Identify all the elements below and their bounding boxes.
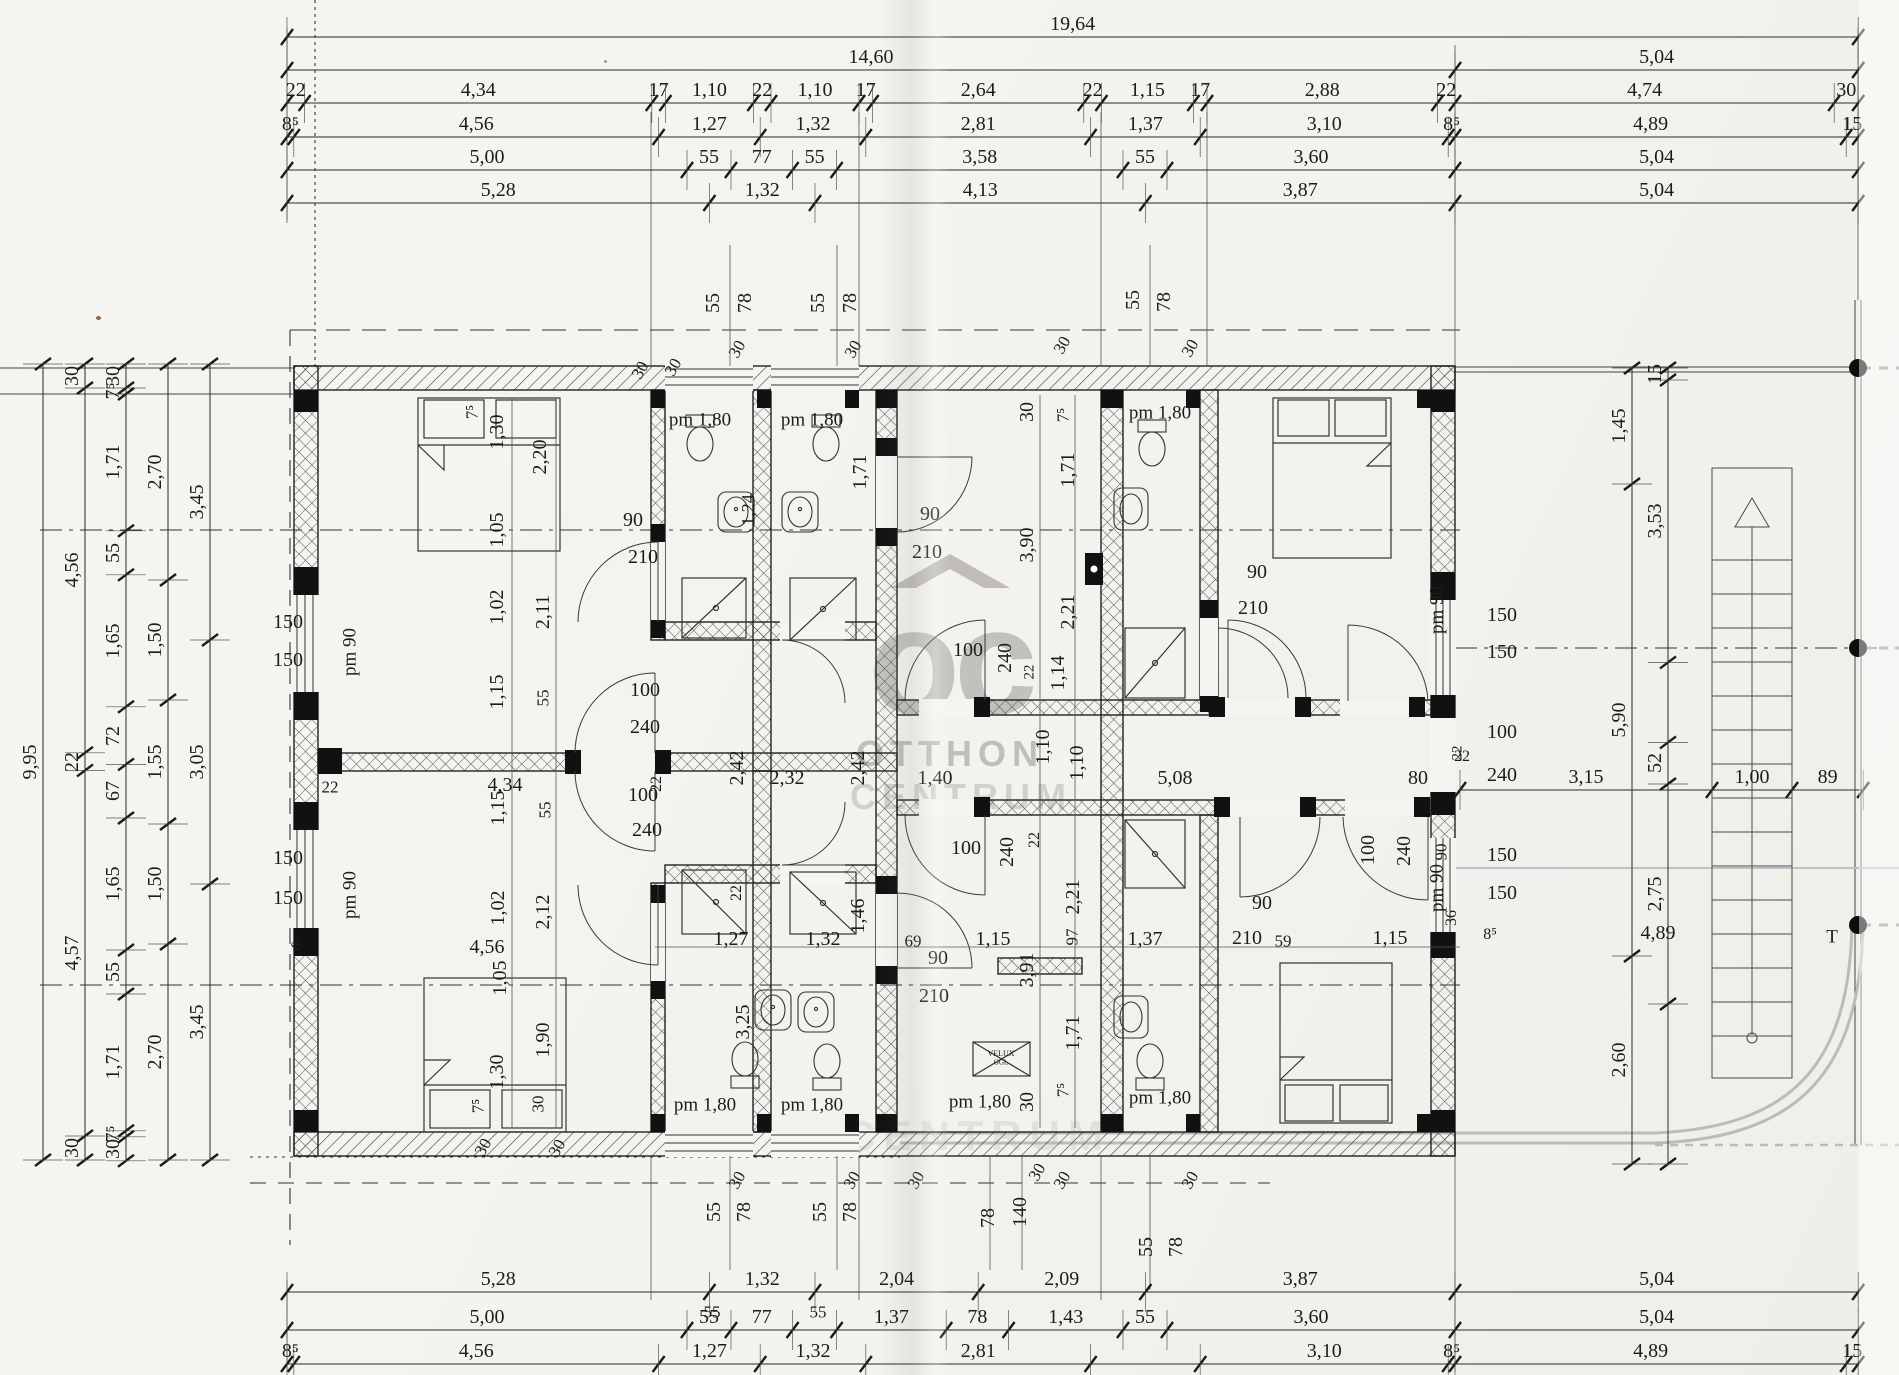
dim-label: 55 bbox=[1136, 1237, 1156, 1257]
dim-label: 1,90 bbox=[533, 1023, 553, 1058]
dim-label: pm 1,80 bbox=[781, 411, 843, 430]
dim-label: 1,10 bbox=[1067, 746, 1087, 781]
dim-label: 5,90 bbox=[1609, 703, 1629, 738]
dim-label: 100 bbox=[1487, 722, 1517, 742]
dim-label: 1,45 bbox=[1609, 409, 1629, 444]
dim-label: 2,21 bbox=[1058, 595, 1078, 630]
dim-label: pm 1,80 bbox=[1129, 404, 1191, 423]
dim-label: 55 bbox=[704, 1304, 721, 1321]
dim-label: 55 bbox=[1135, 1307, 1155, 1327]
dim-label: 3,60 bbox=[1294, 147, 1329, 167]
dim-label: 5,04 bbox=[1639, 180, 1674, 200]
dim-label: 2,70 bbox=[145, 1035, 165, 1070]
dim-label: 15 bbox=[1645, 364, 1665, 384]
dim-label: 1,10 bbox=[1033, 730, 1053, 765]
dim-label: 55 bbox=[699, 147, 719, 167]
dim-label: 22 bbox=[62, 752, 82, 772]
dim-label: 80 bbox=[1408, 768, 1428, 788]
dim-label: 210 bbox=[919, 986, 949, 1006]
dim-label: 7⁵ bbox=[103, 383, 123, 400]
dim-label: 2,64 bbox=[961, 80, 996, 100]
dim-label: 22 bbox=[1023, 665, 1038, 680]
dim-label: 36 bbox=[1444, 910, 1460, 926]
porch-columns bbox=[1849, 359, 1867, 934]
shower-icon bbox=[1125, 820, 1185, 888]
dim-label: 55 bbox=[810, 1304, 827, 1321]
dim-label: 210 bbox=[1232, 928, 1262, 948]
dim-label: 1,32 bbox=[796, 114, 831, 134]
dim-label: 150 bbox=[273, 888, 303, 908]
dim-label: 3,91 bbox=[1017, 953, 1037, 988]
dim-label: pm 1,80 bbox=[674, 1096, 736, 1115]
dim-label: 90 bbox=[928, 948, 948, 968]
dim-label: 4,13 bbox=[963, 180, 998, 200]
dim-label: 240 bbox=[997, 837, 1017, 867]
dim-label: 1,00 bbox=[1735, 767, 1770, 787]
dim-label: 1,43 bbox=[1048, 1307, 1083, 1327]
dim-label: 150 bbox=[273, 650, 303, 670]
dim-label: 4,74 bbox=[1627, 80, 1662, 100]
dim-label: 90 bbox=[623, 510, 643, 530]
dim-label: 3,87 bbox=[1283, 180, 1318, 200]
dim-label: 210 bbox=[628, 547, 658, 567]
dim-label: 30 bbox=[530, 1096, 547, 1113]
dim-label: 1,71 bbox=[103, 1045, 123, 1080]
dim-label: 30 bbox=[62, 366, 82, 386]
dim-label: 55 bbox=[103, 962, 123, 982]
dim-label: 150 bbox=[1487, 883, 1517, 903]
sink-icon bbox=[782, 492, 818, 532]
dim-label: 78 bbox=[735, 293, 755, 313]
dim-label: 1,24 bbox=[739, 494, 757, 526]
dim-label: 89 bbox=[1818, 767, 1838, 787]
dim-label: 210 bbox=[1238, 598, 1268, 618]
dim-label: 2,20 bbox=[530, 440, 550, 475]
dim-label: 55 bbox=[810, 1202, 830, 1222]
dim-label: 2,70 bbox=[145, 455, 165, 490]
dim-label: 55 bbox=[704, 1202, 724, 1222]
dim-label: 2,04 bbox=[879, 1269, 914, 1289]
dim-label: 1,27 bbox=[692, 1341, 727, 1361]
dim-label: 100 bbox=[951, 838, 981, 858]
dim-label: 3,60 bbox=[1294, 1307, 1329, 1327]
dim-label: 55 bbox=[1123, 290, 1143, 310]
porch-dashes bbox=[1862, 368, 1899, 925]
dim-label: 1,02 bbox=[488, 891, 508, 926]
dim-label: 150 bbox=[1487, 845, 1517, 865]
dim-label: 1,27 bbox=[714, 929, 749, 949]
dim-label: 3,53 bbox=[1645, 504, 1665, 539]
walkway bbox=[900, 868, 1899, 1145]
dim-label: 8⁵ bbox=[1483, 927, 1497, 943]
dim-label: 5,04 bbox=[1639, 47, 1674, 67]
dim-label: 78 bbox=[840, 1202, 860, 1222]
dim-label: T bbox=[1826, 928, 1838, 947]
dim-label: 1,37 bbox=[874, 1307, 909, 1327]
dim-label: 15 bbox=[1842, 1341, 1862, 1361]
dim-label: 77 bbox=[752, 147, 772, 167]
paper-speck bbox=[96, 316, 101, 320]
dim-label: 2,81 bbox=[961, 114, 996, 134]
dim-label: 5,04 bbox=[1639, 147, 1674, 167]
dim-label: 97 bbox=[1064, 929, 1081, 946]
dim-label: 2,09 bbox=[1044, 1269, 1079, 1289]
dim-label: 14,60 bbox=[849, 47, 894, 67]
dim-label: 1,02 bbox=[487, 590, 507, 625]
dim-label: 22 bbox=[729, 885, 745, 901]
dim-label: 9,95 bbox=[20, 745, 40, 780]
dim-label: 55 bbox=[537, 802, 554, 819]
dim-label: 2,42 bbox=[727, 751, 747, 786]
dim-label: GGL bbox=[994, 1060, 1008, 1067]
dim-label: 210 bbox=[912, 542, 942, 562]
sink-icon bbox=[798, 992, 834, 1032]
dim-label: 22 bbox=[1083, 80, 1103, 100]
walls bbox=[294, 366, 1455, 1156]
dim-label: 17 bbox=[1190, 80, 1210, 100]
dim-label: 3,10 bbox=[1307, 1341, 1342, 1361]
dim-label: 1,40 bbox=[918, 768, 953, 788]
dim-label: 1,15 bbox=[1373, 928, 1408, 948]
dim-label: 78 bbox=[734, 1202, 754, 1222]
dim-label: 3,15 bbox=[1569, 767, 1604, 787]
dim-label: 100 bbox=[630, 680, 660, 700]
dim-label: 5,08 bbox=[1158, 768, 1193, 788]
dim-label: 5,04 bbox=[1639, 1307, 1674, 1327]
dim-label: 78 bbox=[967, 1307, 987, 1327]
floorplan-drawing bbox=[0, 0, 1899, 1375]
dim-label: 5,28 bbox=[481, 1269, 516, 1289]
shower-icon bbox=[1125, 628, 1185, 698]
dim-label: 30 bbox=[1017, 1092, 1037, 1112]
dim-label: 1,65 bbox=[103, 867, 123, 902]
dim-label: 19,64 bbox=[1050, 14, 1095, 34]
wc-icon bbox=[1138, 420, 1166, 466]
bed-top-right bbox=[1273, 398, 1391, 558]
dim-label: 55 bbox=[535, 690, 552, 707]
dim-label: 55 bbox=[703, 293, 723, 313]
dim-label: 240 bbox=[630, 717, 660, 737]
dim-label: 2,42 bbox=[848, 751, 868, 786]
dim-label: pm 1,80 bbox=[669, 411, 731, 430]
dim-label: 78 bbox=[1166, 1237, 1186, 1257]
dim-label: 1,50 bbox=[145, 623, 165, 658]
dim-label: 1,27 bbox=[692, 114, 727, 134]
dim-label: 100 bbox=[628, 785, 658, 805]
dim-label: 240 bbox=[1487, 765, 1517, 785]
dim-label: 72 bbox=[103, 726, 123, 746]
dim-label: 2,32 bbox=[770, 768, 805, 788]
dim-label: 5,00 bbox=[470, 147, 505, 167]
dim-label: 22 bbox=[752, 80, 772, 100]
dim-label: 55 bbox=[808, 293, 828, 313]
dim-label: 15 bbox=[1842, 114, 1862, 134]
dim-label: 2,21 bbox=[1063, 880, 1083, 915]
dim-label: 22 bbox=[1027, 832, 1043, 848]
dim-label: 30 bbox=[1017, 402, 1037, 422]
dim-label: 3,25 bbox=[733, 1005, 753, 1040]
dim-label: 1,05 bbox=[487, 513, 507, 548]
dim-label: 1,71 bbox=[1063, 1016, 1083, 1051]
dim-label: 2,12 bbox=[533, 895, 553, 930]
dim-label: 1,71 bbox=[103, 445, 123, 480]
dim-label: 240 bbox=[1394, 836, 1414, 866]
dim-label: 77 bbox=[752, 1307, 772, 1327]
dim-label: 1,32 bbox=[745, 180, 780, 200]
dim-label: 3,45 bbox=[187, 1005, 207, 1040]
dim-label: 1,55 bbox=[145, 745, 165, 780]
dim-label: 4,56 bbox=[62, 553, 82, 588]
dim-label: 1,15 bbox=[976, 929, 1011, 949]
dim-label: 3,58 bbox=[962, 147, 997, 167]
dim-label: 22 bbox=[1451, 746, 1466, 761]
dim-label: 3,05 bbox=[187, 745, 207, 780]
dim-label: 1,10 bbox=[692, 80, 727, 100]
dim-label: pm 90 bbox=[1428, 864, 1447, 912]
dim-label: 3,87 bbox=[1283, 1269, 1318, 1289]
dim-label: 1,15 bbox=[1130, 80, 1165, 100]
dim-label: 8⁵ bbox=[282, 1341, 299, 1361]
wc-icon bbox=[1136, 1044, 1164, 1090]
dim-label: 2,75 bbox=[1645, 877, 1665, 912]
dim-label: pm 90 bbox=[1428, 586, 1447, 634]
dim-label: 3,10 bbox=[1307, 114, 1342, 134]
dim-label: 1,65 bbox=[103, 623, 123, 658]
dim-label: 59 bbox=[1275, 933, 1292, 950]
dim-label: 150 bbox=[1487, 642, 1517, 662]
dim-label: 150 bbox=[273, 848, 303, 868]
dim-label: 22 bbox=[1436, 80, 1456, 100]
paper-speck bbox=[604, 60, 607, 63]
dim-label: pm 1,80 bbox=[781, 1096, 843, 1115]
dim-label: 55 bbox=[103, 543, 123, 563]
dim-label: 140 bbox=[1010, 1197, 1030, 1227]
dim-label: 78 bbox=[978, 1208, 998, 1228]
dim-label: 150 bbox=[273, 612, 303, 632]
dim-label: pm 90 bbox=[341, 871, 360, 919]
dim-label: 7⁵ bbox=[1055, 408, 1072, 422]
dim-label: 2,11 bbox=[533, 595, 553, 629]
dim-label: 1,46 bbox=[848, 899, 868, 934]
dim-label: 1,32 bbox=[806, 929, 841, 949]
dim-label: 90 bbox=[1252, 893, 1272, 913]
dim-label: 1,10 bbox=[798, 80, 833, 100]
dim-label: 150 bbox=[1487, 605, 1517, 625]
dim-label: 4,89 bbox=[1641, 923, 1676, 943]
dim-label: 1,37 bbox=[1128, 929, 1163, 949]
dim-label: VELUX bbox=[987, 1050, 1014, 1058]
dim-label: 100 bbox=[953, 640, 983, 660]
dim-label: 2,81 bbox=[961, 1341, 996, 1361]
dim-label: 1,71 bbox=[850, 455, 870, 490]
dim-label: 100 bbox=[1358, 835, 1378, 865]
dim-label: 55 bbox=[1135, 147, 1155, 167]
dim-label: 90 bbox=[1433, 844, 1450, 861]
dim-label: 22 bbox=[286, 80, 306, 100]
dim-label: 90 bbox=[920, 504, 940, 524]
dim-label: 2,60 bbox=[1609, 1043, 1629, 1078]
dim-label: pm 90 bbox=[341, 628, 360, 676]
dim-label: 4,56 bbox=[459, 114, 494, 134]
dim-label: 30 bbox=[1836, 80, 1856, 100]
wc-icon bbox=[813, 1044, 841, 1090]
dim-label: 4,89 bbox=[1633, 1341, 1668, 1361]
dim-label: 4,89 bbox=[1633, 114, 1668, 134]
dim-label: 17 bbox=[649, 80, 669, 100]
dim-label: 67 bbox=[103, 781, 123, 801]
dim-label: 3,90 bbox=[1017, 528, 1037, 563]
bed-bottom-right bbox=[1280, 963, 1392, 1123]
dim-label: 4,34 bbox=[461, 80, 496, 100]
dim-label: 8⁵ bbox=[1443, 114, 1460, 134]
blueprint-page: oc OTTHON CENTRUM CENTRUM bbox=[0, 0, 1899, 1375]
dim-label: 8⁵ bbox=[1443, 1341, 1460, 1361]
dim-label: 78 bbox=[840, 293, 860, 313]
dim-label: 8⁵ bbox=[282, 114, 299, 134]
dim-label: 90 bbox=[1247, 562, 1267, 582]
dim-label: 240 bbox=[632, 820, 662, 840]
dim-label: 5,28 bbox=[481, 180, 516, 200]
dim-label: 1,30 bbox=[487, 1055, 507, 1090]
dim-label: 5,00 bbox=[470, 1307, 505, 1327]
dim-label: 1,14 bbox=[1048, 656, 1068, 691]
dim-label: 4,56 bbox=[470, 937, 505, 957]
dim-label: 1,05 bbox=[490, 961, 510, 996]
dim-label: 30 bbox=[103, 1139, 123, 1159]
dim-label: 7⁵ bbox=[1055, 1083, 1072, 1097]
dim-label: 69 bbox=[905, 933, 922, 950]
dim-label: 1,15 bbox=[487, 675, 507, 710]
dim-label: 55 bbox=[805, 147, 825, 167]
dim-label: 7⁵ bbox=[470, 1099, 487, 1113]
dim-label: 1,71 bbox=[1058, 453, 1078, 488]
dim-label: 1,32 bbox=[745, 1269, 780, 1289]
dim-label: 4,56 bbox=[459, 1341, 494, 1361]
dim-label: 78 bbox=[1154, 292, 1174, 312]
site-lines bbox=[0, 300, 1862, 1145]
dim-label: 1,15 bbox=[488, 791, 508, 826]
dim-label: pm 1,80 bbox=[1129, 1089, 1191, 1108]
dim-label: 7⁵ bbox=[464, 405, 481, 419]
dim-label: 30 bbox=[62, 1138, 82, 1158]
dim-label: 5,04 bbox=[1639, 1269, 1674, 1289]
dim-label: 1,37 bbox=[1128, 114, 1163, 134]
dim-label: 52 bbox=[1645, 753, 1665, 773]
dim-label: 1,32 bbox=[796, 1341, 831, 1361]
stairs-up-arrow-icon bbox=[1735, 498, 1769, 527]
dim-label: 3,45 bbox=[187, 485, 207, 520]
dim-label: 4,57 bbox=[62, 936, 82, 971]
dim-label: 1,30 bbox=[487, 415, 507, 450]
dim-label: 240 bbox=[995, 643, 1015, 673]
dim-label: pm 1,80 bbox=[949, 1093, 1011, 1112]
dim-label: 17 bbox=[856, 80, 876, 100]
meter-symbol bbox=[1091, 566, 1098, 573]
dim-label: 1,50 bbox=[145, 867, 165, 902]
dim-label: 2,88 bbox=[1305, 80, 1340, 100]
dim-label: 22 bbox=[322, 779, 339, 796]
